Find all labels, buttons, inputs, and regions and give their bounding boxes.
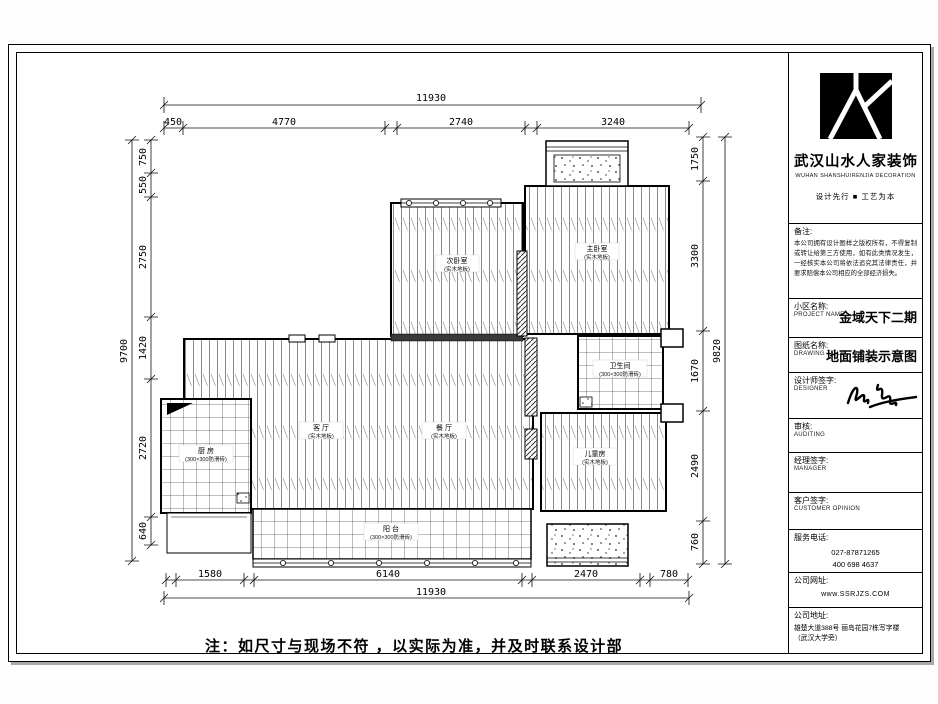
title-block: 武汉山水人家装饰 WUHAN SHANSHUIRENJIA DECORATION…: [788, 53, 922, 653]
website-section: 公司网址: www.SSRJZS.COM: [789, 573, 922, 608]
sheet-inner-border: 次卧室 (实木地板) 主卧室 (实木地板): [16, 52, 923, 654]
room-label: 次卧室: [447, 256, 468, 265]
phone-number-1: 027-87871265: [794, 547, 917, 559]
dim-left-4: 1420: [138, 336, 149, 360]
dim-right-5: 760: [690, 533, 701, 551]
window-pin-icon: [328, 560, 333, 565]
room-label: 厨 房: [198, 446, 214, 455]
window-pin-icon: [424, 560, 429, 565]
site-note: 注：如尺寸与现场不符 ，以实际为准，并及时联系设计部: [205, 635, 623, 656]
room-material: (实木地板): [431, 432, 457, 440]
remark-text: 本公司拥有设计图样之版权所有，不得复制或转让给第三方使用，如有此类情况发生，一经…: [794, 239, 917, 278]
room-kitchen: 厨 房 (300×300防滑砖): [161, 399, 251, 553]
floor-plan-drawing: 次卧室 (实木地板) 主卧室 (实木地板): [17, 53, 922, 653]
company-tagline: 设计先行 ■ 工艺为本: [794, 191, 917, 202]
room-children: 儿童房 (实木地板): [541, 413, 666, 511]
address-line-2: （武汉大学旁）: [794, 634, 917, 644]
audit-label: 审核:: [794, 422, 917, 432]
audit-label-en: AUDITING: [794, 432, 917, 439]
address-label: 公司地址:: [794, 611, 917, 621]
window-pin-icon: [460, 200, 465, 205]
company-name: 武汉山水人家装饰: [794, 150, 917, 171]
room-label: 主卧室: [587, 244, 608, 253]
room-material: (实木地板): [444, 265, 470, 273]
room-label: 客 厅: [313, 423, 329, 432]
room-bathroom: 卫生间 (300×300防滑砖): [578, 336, 663, 409]
project-section: 小区名称: PROJECT NAME 金域天下二期: [789, 299, 922, 338]
phone-number-2: 400 698 4637: [794, 559, 917, 571]
room-label: 卫生间: [610, 361, 631, 370]
dim-right-4: 2490: [690, 454, 701, 478]
dim-top-1: 450: [164, 117, 182, 128]
dim-left-1: 750: [138, 148, 149, 166]
designer-section: 设计师签字: DESIGNER: [789, 373, 922, 419]
room-label: 餐 厅: [436, 423, 452, 432]
dim-right-total: 9820: [712, 339, 723, 363]
manager-label-en: MANAGER: [794, 466, 917, 473]
remark-label: 备注:: [794, 227, 917, 237]
audit-section: 审核: AUDITING: [789, 419, 922, 453]
room-label: 儿童房: [585, 449, 606, 458]
dim-bottom-1: 1580: [198, 569, 222, 580]
remark-section: 备注: 本公司拥有设计图样之版权所有，不得复制或转让给第三方使用，如有此类情况发…: [789, 224, 922, 299]
phone-label: 服务电话:: [794, 533, 917, 543]
dim-right-1: 1750: [690, 147, 701, 171]
drawing-sheet: 次卧室 (实木地板) 主卧室 (实木地板): [8, 44, 931, 662]
dim-right-3: 1670: [690, 359, 701, 383]
drawing-title-section: 图纸名称: DRAWING TITLE 地面铺装示意图: [789, 338, 922, 373]
dim-bottom-4: 780: [660, 569, 678, 580]
room-material: (300×300防滑砖): [599, 370, 641, 378]
dim-left-5: 2720: [138, 436, 149, 460]
customer-section: 客户签字: CUSTOMER OPINION: [789, 493, 922, 530]
company-logo-icon: [820, 73, 892, 139]
dim-top-4: 3240: [601, 117, 625, 128]
manager-label: 经理签字:: [794, 456, 917, 466]
designer-signature: [840, 375, 920, 415]
window-pin-icon: [376, 560, 381, 565]
page: { "sheet": { "note": "注：如尺寸与现场不符 ，以实际为准，…: [0, 0, 938, 704]
website-label: 公司网址:: [794, 576, 917, 586]
room-material: (300×300防滑砖): [185, 455, 227, 463]
window-pin-icon: [280, 560, 285, 565]
dim-right-2: 3300: [690, 244, 701, 268]
customer-label-en: CUSTOMER OPINION: [794, 506, 917, 513]
address-line-1: 雄楚大道388号 丽岛花园7栋写字楼: [794, 624, 917, 634]
dim-bottom-3: 2470: [574, 569, 598, 580]
room-master-bedroom: 主卧室 (实木地板): [525, 186, 669, 334]
dim-left-total: 9700: [119, 339, 130, 363]
dim-top-3: 2740: [449, 117, 473, 128]
address-section: 公司地址: 雄楚大道388号 丽岛花园7栋写字楼 （武汉大学旁）: [789, 608, 922, 653]
window-pin-icon: [472, 560, 477, 565]
website-url: www.SSRJZS.COM: [794, 591, 917, 598]
dim-bottom-2: 6140: [376, 569, 400, 580]
room-material: (实木地板): [582, 458, 608, 466]
window-pin-icon: [433, 200, 438, 205]
dim-left-2: 550: [138, 176, 149, 194]
balcony-bottom-right: [547, 524, 628, 566]
window-pin-icon: [406, 200, 411, 205]
dim-top-total: 11930: [416, 93, 446, 104]
company-header: 武汉山水人家装饰 WUHAN SHANSHUIRENJIA DECORATION…: [789, 53, 922, 224]
dim-left-3: 2750: [138, 245, 149, 269]
phone-section: 服务电话: 027-87871265 400 698 4637: [789, 530, 922, 573]
window-pin-icon: [513, 560, 518, 565]
room-material: (300×300防滑砖): [370, 533, 412, 541]
company-name-en: WUHAN SHANSHUIRENJIA DECORATION: [794, 173, 917, 179]
room-material: (实木地板): [584, 253, 610, 261]
dim-bottom-total: 11930: [416, 587, 446, 598]
balcony-bottom: 阳 台 (300×300防滑砖): [253, 509, 531, 567]
dim-top-2: 4770: [272, 117, 296, 128]
manager-section: 经理签字: MANAGER: [789, 453, 922, 494]
room-material: (实木地板): [308, 432, 334, 440]
window-pin-icon: [487, 200, 492, 205]
balcony-top: [546, 141, 628, 186]
dim-left-6: 640: [138, 522, 149, 540]
room-bedroom2: 次卧室 (实木地板): [391, 199, 523, 336]
customer-label: 客户签字:: [794, 496, 917, 506]
room-label: 阳 台: [383, 524, 399, 533]
